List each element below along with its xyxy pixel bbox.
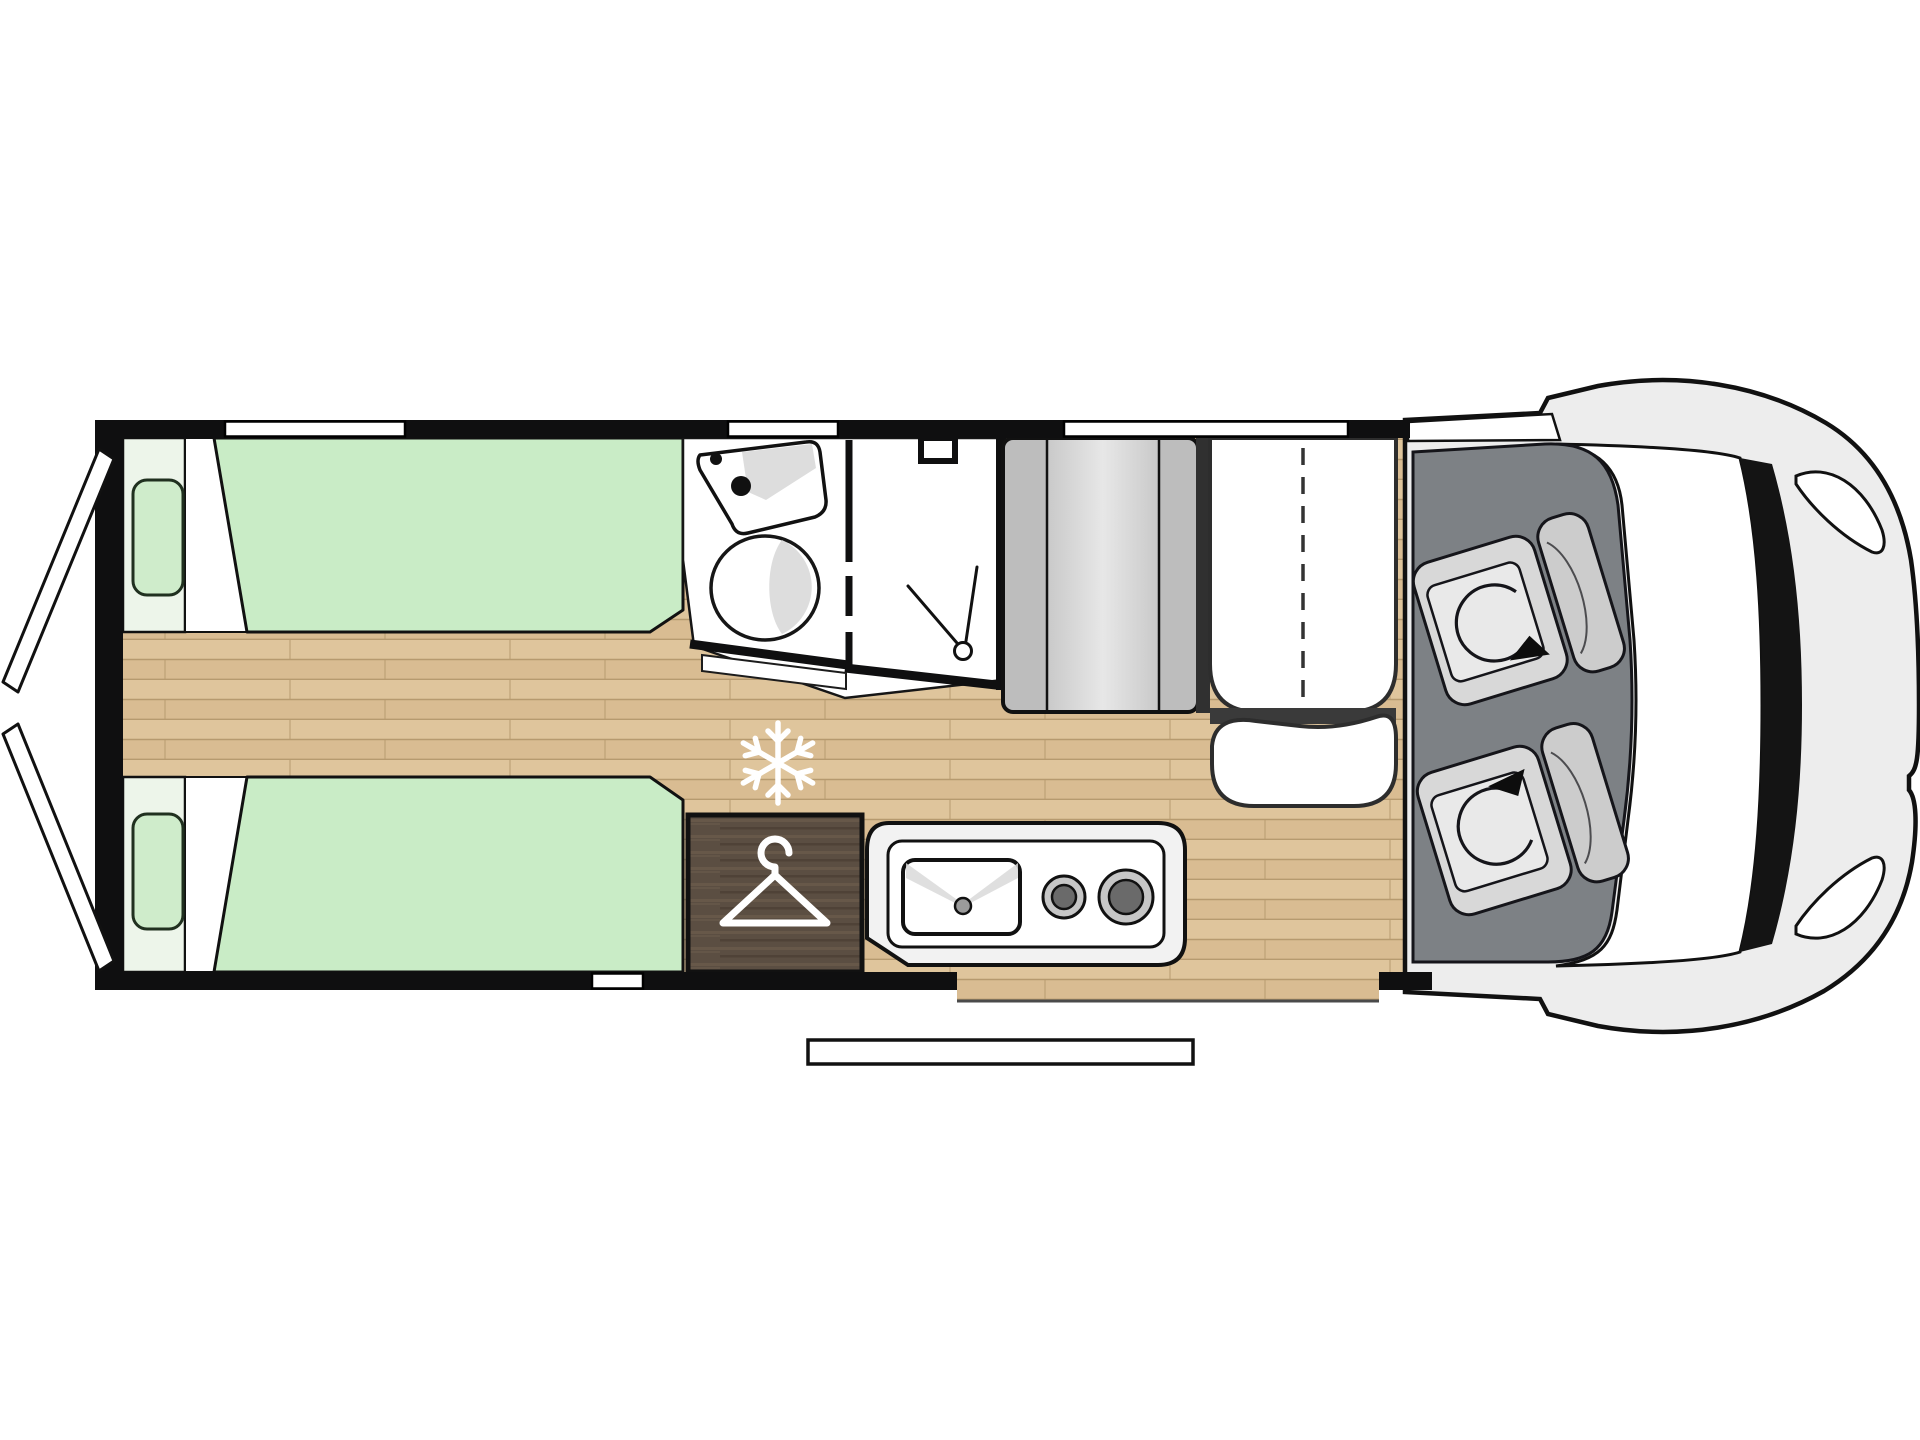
entrance-step xyxy=(808,1040,1193,1064)
drain-dot xyxy=(731,476,751,496)
window xyxy=(1064,422,1348,437)
floorplan-canvas xyxy=(0,0,1920,1440)
washroom xyxy=(683,438,1005,698)
bed-mattress xyxy=(214,777,683,972)
sink-faucet xyxy=(955,898,971,914)
window xyxy=(728,422,838,437)
window xyxy=(592,974,643,989)
tall-cabinet xyxy=(996,438,1198,712)
bed-pillow xyxy=(133,480,183,595)
single-bed-top xyxy=(123,438,683,632)
entry-floor xyxy=(957,972,1379,1002)
shower-column xyxy=(921,438,955,461)
hob-burner-small xyxy=(1043,876,1085,918)
kitchen-block xyxy=(867,823,1185,965)
bed-pillow xyxy=(133,814,183,929)
single-bed-bottom xyxy=(123,777,683,972)
cabinet-bench-gap xyxy=(1196,438,1210,713)
bed-mattress xyxy=(214,438,683,632)
hob-burner-large xyxy=(1099,870,1153,924)
dinette-table xyxy=(1212,716,1396,806)
wardrobe xyxy=(688,815,862,972)
travel-bench xyxy=(1210,438,1396,712)
window xyxy=(225,422,405,437)
faucet-dot xyxy=(710,453,722,465)
floorplan-svg xyxy=(0,0,1920,1440)
cab xyxy=(1407,444,1634,962)
